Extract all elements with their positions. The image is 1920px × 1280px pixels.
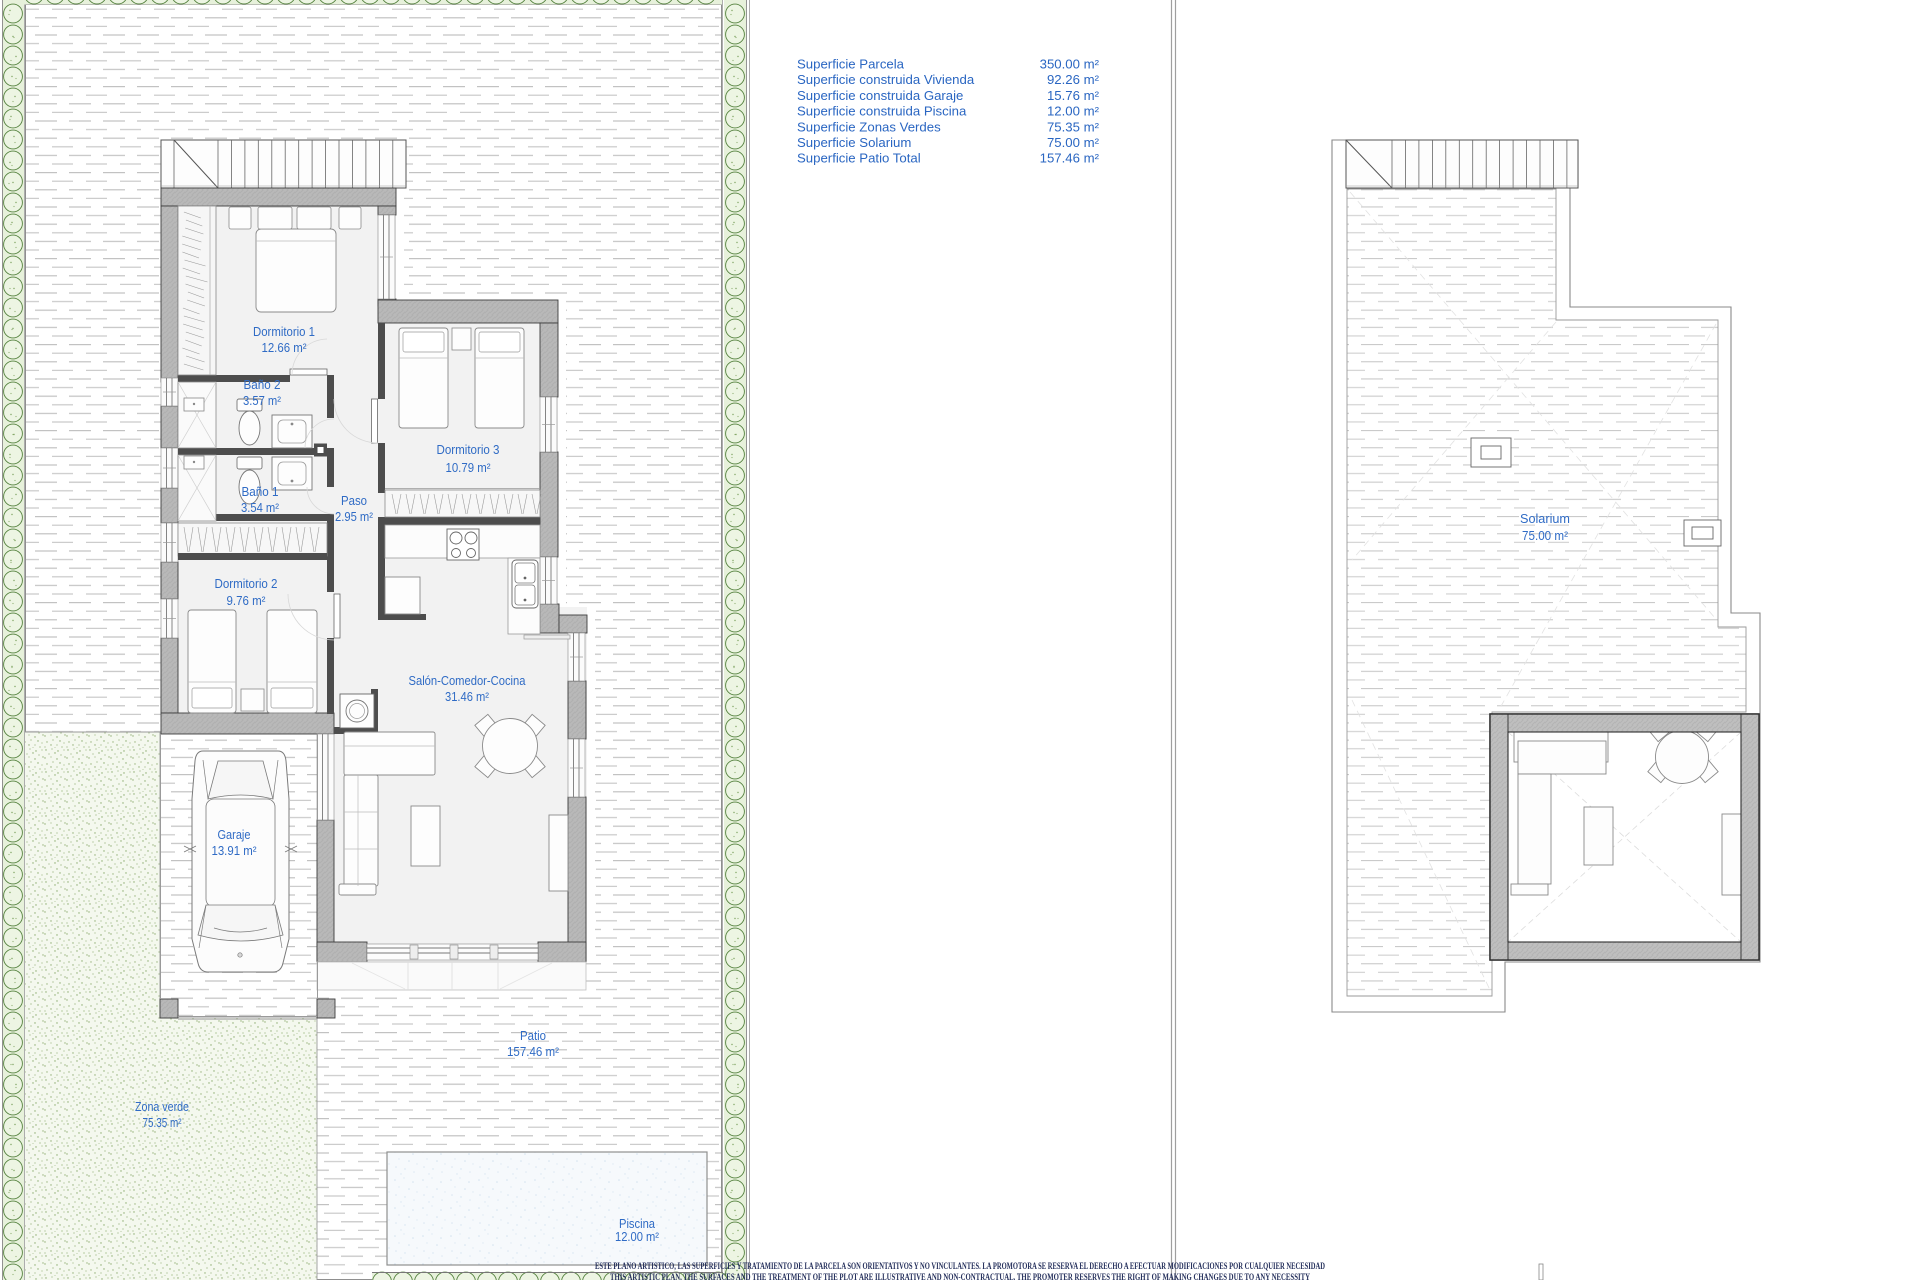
svg-text:75.35 m²: 75.35 m² (1047, 119, 1100, 134)
svg-text:Garaje: Garaje (218, 827, 251, 842)
svg-text:157.46 m²: 157.46 m² (1040, 151, 1100, 166)
svg-text:75.00 m²: 75.00 m² (1522, 528, 1569, 543)
svg-text:10.79 m²: 10.79 m² (446, 460, 492, 475)
svg-text:Superficie Patio Total: Superficie Patio Total (797, 151, 921, 166)
svg-text:Superficie Parcela: Superficie Parcela (797, 57, 905, 72)
svg-text:75.35 m²: 75.35 m² (143, 1115, 182, 1130)
svg-text:2.95 m²: 2.95 m² (335, 509, 374, 524)
svg-text:92.26 m²: 92.26 m² (1047, 72, 1100, 87)
svg-text:350.00 m²: 350.00 m² (1040, 57, 1100, 72)
svg-text:12.00 m²: 12.00 m² (1047, 104, 1100, 119)
svg-text:13.91 m²: 13.91 m² (212, 843, 258, 858)
svg-text:3.54 m²: 3.54 m² (241, 500, 280, 515)
svg-text:3.57 m²: 3.57 m² (243, 393, 282, 408)
svg-text:9.76 m²: 9.76 m² (227, 593, 267, 608)
svg-text:Dormitorio 1: Dormitorio 1 (253, 324, 315, 339)
svg-text:Paso: Paso (341, 493, 367, 508)
svg-text:Superficie construida Piscina: Superficie construida Piscina (797, 104, 967, 119)
svg-text:Baño 2: Baño 2 (244, 377, 281, 392)
svg-text:Salón-Comedor-Cocina: Salón-Comedor-Cocina (409, 673, 527, 688)
svg-text:75.00 m²: 75.00 m² (1047, 135, 1100, 150)
svg-text:12.66 m²: 12.66 m² (262, 340, 308, 355)
svg-text:Zona verde: Zona verde (135, 1099, 189, 1114)
svg-text:157.46 m²: 157.46 m² (507, 1044, 560, 1059)
svg-text:Superficie Solarium: Superficie Solarium (797, 135, 911, 150)
svg-text:Solarium: Solarium (1520, 511, 1570, 526)
svg-text:15.76 m²: 15.76 m² (1047, 88, 1100, 103)
svg-text:Dormitorio 3: Dormitorio 3 (437, 442, 500, 457)
svg-text:Superficie Zonas Verdes: Superficie Zonas Verdes (797, 119, 941, 134)
svg-text:Superficie construida Garaje: Superficie construida Garaje (797, 88, 963, 103)
svg-text:Dormitorio 2: Dormitorio 2 (215, 576, 278, 591)
svg-text:Superficie construida Vivienda: Superficie construida Vivienda (797, 72, 975, 87)
svg-text:31.46 m²: 31.46 m² (445, 689, 490, 704)
svg-text:Baño 1: Baño 1 (242, 484, 279, 499)
svg-text:ESTE PLANO ARTISTICO, LAS SUPE: ESTE PLANO ARTISTICO, LAS SUPERFICIES Y … (595, 1261, 1325, 1271)
svg-text:THIS ARTISTIC PLAN, THE SURFAC: THIS ARTISTIC PLAN, THE SURFACES AND THE… (610, 1272, 1310, 1280)
svg-text:Patio: Patio (520, 1028, 546, 1043)
svg-text:12.00 m²: 12.00 m² (615, 1229, 660, 1244)
